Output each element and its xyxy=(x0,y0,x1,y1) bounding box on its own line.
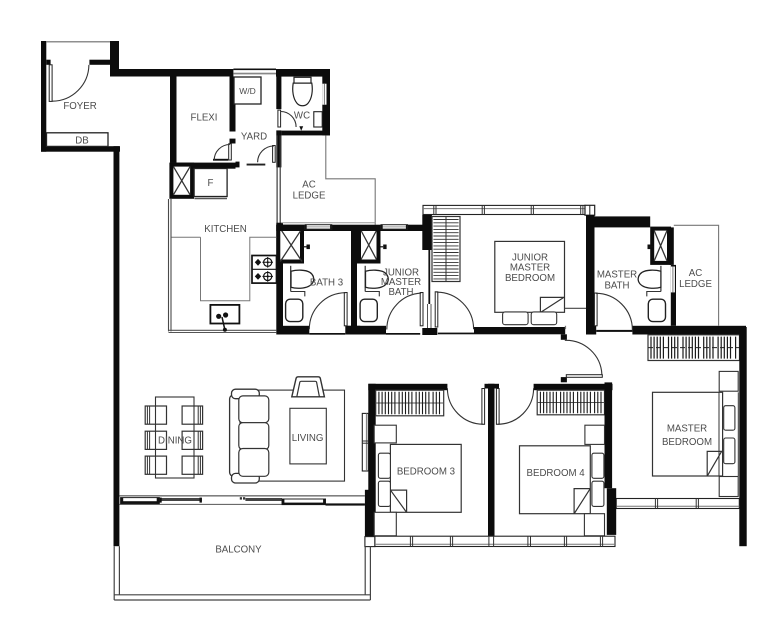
svg-text:BALCONY: BALCONY xyxy=(215,544,262,555)
svg-text:BEDROOM 3: BEDROOM 3 xyxy=(397,466,455,477)
svg-text:KITCHEN: KITCHEN xyxy=(204,224,247,235)
svg-text:MASTER: MASTER xyxy=(667,423,707,434)
svg-text:AC: AC xyxy=(302,180,315,191)
svg-text:MASTER: MASTER xyxy=(597,269,637,280)
svg-text:BEDROOM: BEDROOM xyxy=(662,437,712,448)
svg-text:BATH: BATH xyxy=(604,280,629,291)
svg-text:AC: AC xyxy=(689,268,702,279)
svg-text:W/D: W/D xyxy=(239,86,256,96)
svg-text:LEDGE: LEDGE xyxy=(679,279,712,290)
svg-text:BATH: BATH xyxy=(388,287,413,298)
svg-text:WC: WC xyxy=(294,110,310,121)
svg-text:F: F xyxy=(208,178,214,189)
svg-text:BEDROOM 4: BEDROOM 4 xyxy=(527,468,586,479)
svg-text:DB: DB xyxy=(75,136,88,147)
svg-text:BEDROOM: BEDROOM xyxy=(505,273,555,284)
svg-text:BATH 3: BATH 3 xyxy=(310,278,343,289)
svg-text:FOYER: FOYER xyxy=(63,101,96,112)
svg-text:LIVING: LIVING xyxy=(292,433,324,444)
svg-text:LEDGE: LEDGE xyxy=(293,190,326,201)
svg-text:DINING: DINING xyxy=(158,435,192,446)
svg-text:FLEXI: FLEXI xyxy=(191,112,218,123)
svg-text:YARD: YARD xyxy=(241,131,267,142)
